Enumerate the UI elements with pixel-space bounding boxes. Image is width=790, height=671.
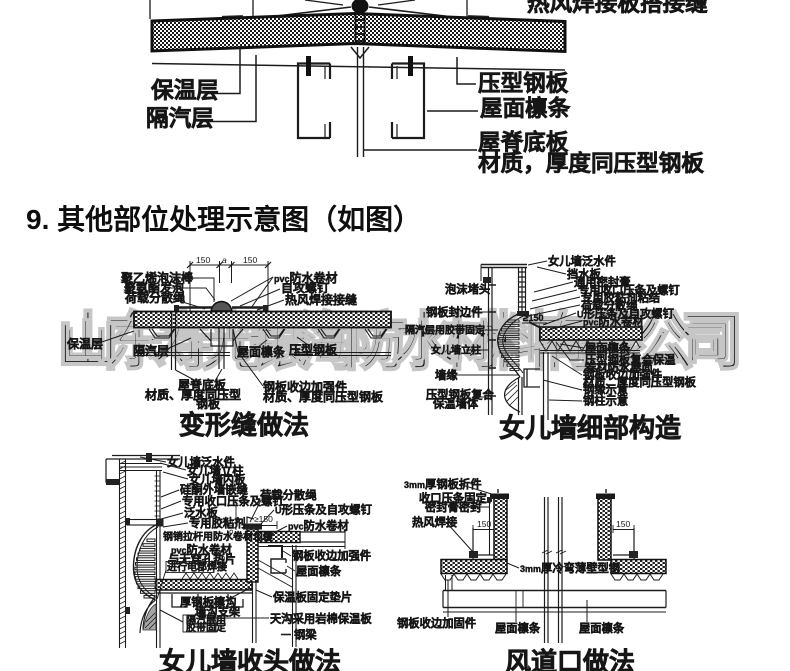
svg-text:硅酮外墙嵌缝: 硅酮外墙嵌缝 xyxy=(180,483,248,497)
svg-text:钢板收边加强件: 钢板收边加强件 xyxy=(292,549,371,563)
svg-text:3mm厚钢板折件: 3mm厚钢板折件 xyxy=(404,477,482,491)
svg-text:pvc防水卷材: pvc防水卷材 xyxy=(583,315,644,329)
svg-text:压型钢板: 压型钢板 xyxy=(478,71,569,96)
svg-text:女儿墙细部构造: 女儿墙细部构造 xyxy=(499,413,681,443)
svg-text:屋面檩条: 屋面檩条 xyxy=(495,621,541,635)
svg-text:150: 150 xyxy=(616,519,630,529)
svg-text:热风焊接接缝: 热风焊接接缝 xyxy=(285,292,357,307)
svg-text:女儿墙泛水件: 女儿墙泛水件 xyxy=(548,254,616,268)
svg-text:压型钢板: 压型钢板 xyxy=(289,342,338,357)
svg-text:荷载分散绳: 荷载分散绳 xyxy=(259,488,317,502)
svg-text:保温板固定垫片: 保温板固定垫片 xyxy=(272,590,352,604)
svg-text:pvc防水卷材: pvc防水卷材 xyxy=(288,519,349,533)
svg-text:保温墙体: 保温墙体 xyxy=(432,397,479,411)
svg-text:热风焊接: 热风焊接 xyxy=(412,515,458,529)
svg-text:材质、厚度同压型钢板: 材质、厚度同压型钢板 xyxy=(262,389,384,404)
svg-text:进行电郡焊接: 进行电郡焊接 xyxy=(167,561,227,574)
svg-text:≥150: ≥150 xyxy=(254,514,273,524)
svg-text:材质，厚度同压型钢板: 材质，厚度同压型钢板 xyxy=(478,150,704,176)
svg-text:a: a xyxy=(222,255,227,265)
svg-text:钢柱示意: 钢柱示意 xyxy=(583,394,628,408)
svg-text:屋面檩条: 屋面檩条 xyxy=(585,341,631,355)
svg-text:150: 150 xyxy=(243,255,257,265)
svg-text:钢销拉杆用防水卷材包覆: 钢销拉杆用防水卷材包覆 xyxy=(163,530,274,543)
svg-text:钢缘示意: 钢缘示意 xyxy=(583,383,628,397)
svg-text:专用胶粘剂: 专用胶粘剂 xyxy=(189,516,246,530)
svg-text:保温层: 保温层 xyxy=(150,77,219,103)
svg-text:3mm厚冷弯薄壁型钢: 3mm厚冷弯薄壁型钢 xyxy=(520,561,620,575)
svg-text:钢板收边加固件: 钢板收边加固件 xyxy=(397,616,476,630)
svg-text:女儿墙收头做法: 女儿墙收头做法 xyxy=(159,647,341,671)
svg-text:U形压条及自攻螺钉: U形压条及自攻螺钉 xyxy=(275,503,373,517)
svg-text:天沟采用岩棉保温板: 天沟采用岩棉保温板 xyxy=(270,612,372,626)
svg-text:150: 150 xyxy=(477,519,491,529)
svg-text:墙缘: 墙缘 xyxy=(435,368,458,382)
svg-text:屋面檩条: 屋面檩条 xyxy=(296,564,342,578)
svg-text:隔汽层: 隔汽层 xyxy=(146,106,214,131)
svg-text:钢梁: 钢梁 xyxy=(294,628,317,642)
svg-text:屋面檩条: 屋面檩条 xyxy=(480,95,571,121)
svg-text:材质、厚度同压型: 材质、厚度同压型 xyxy=(144,387,241,402)
svg-text:钢板: 钢板 xyxy=(196,396,221,411)
svg-text:热风焊接板搭接缝: 热风焊接板搭接缝 xyxy=(527,0,708,16)
svg-text:风道口做法: 风道口做法 xyxy=(505,647,635,671)
svg-text:屋面檩条: 屋面檩条 xyxy=(237,344,286,359)
svg-text:9. 其他部位处理示意图（如图）: 9. 其他部位处理示意图（如图） xyxy=(26,203,421,235)
svg-text:隔汽层: 隔汽层 xyxy=(133,343,169,358)
svg-text:屋面檩条: 屋面檩条 xyxy=(579,621,625,635)
svg-text:150: 150 xyxy=(196,255,210,265)
svg-text:荷载分散绳: 荷载分散绳 xyxy=(124,290,185,305)
svg-text:变形缝做法: 变形缝做法 xyxy=(179,410,309,440)
